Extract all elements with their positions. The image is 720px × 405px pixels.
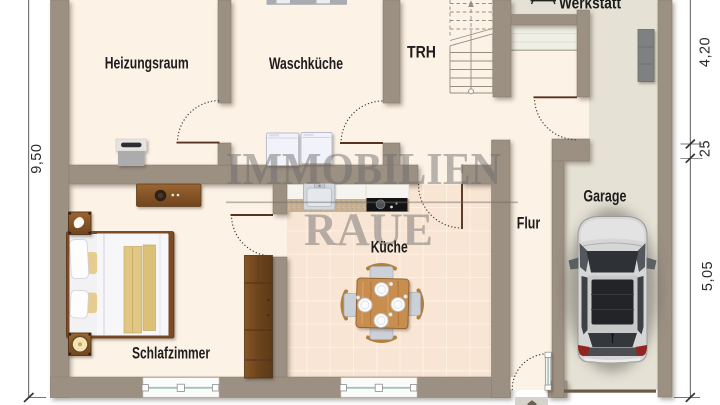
- svg-text:RAUE: RAUE: [304, 205, 433, 256]
- svg-text:Werkstatt: Werkstatt: [559, 0, 621, 12]
- svg-text:IMMOBILIEN: IMMOBILIEN: [226, 143, 501, 194]
- svg-text:Schlafzimmer: Schlafzimmer: [132, 344, 210, 362]
- svg-text:Heizungsraum: Heizungsraum: [105, 55, 189, 73]
- svg-text:Flur: Flur: [517, 214, 541, 232]
- svg-text:9,50: 9,50: [29, 144, 45, 174]
- svg-text:Garage: Garage: [583, 188, 626, 206]
- svg-text:4,20: 4,20: [698, 37, 714, 67]
- svg-text:25: 25: [698, 140, 714, 157]
- svg-text:Waschküche: Waschküche: [269, 55, 343, 73]
- svg-text:TRH: TRH: [407, 44, 436, 62]
- svg-text:5,05: 5,05: [700, 261, 716, 291]
- svg-text:Küche: Küche: [371, 238, 408, 256]
